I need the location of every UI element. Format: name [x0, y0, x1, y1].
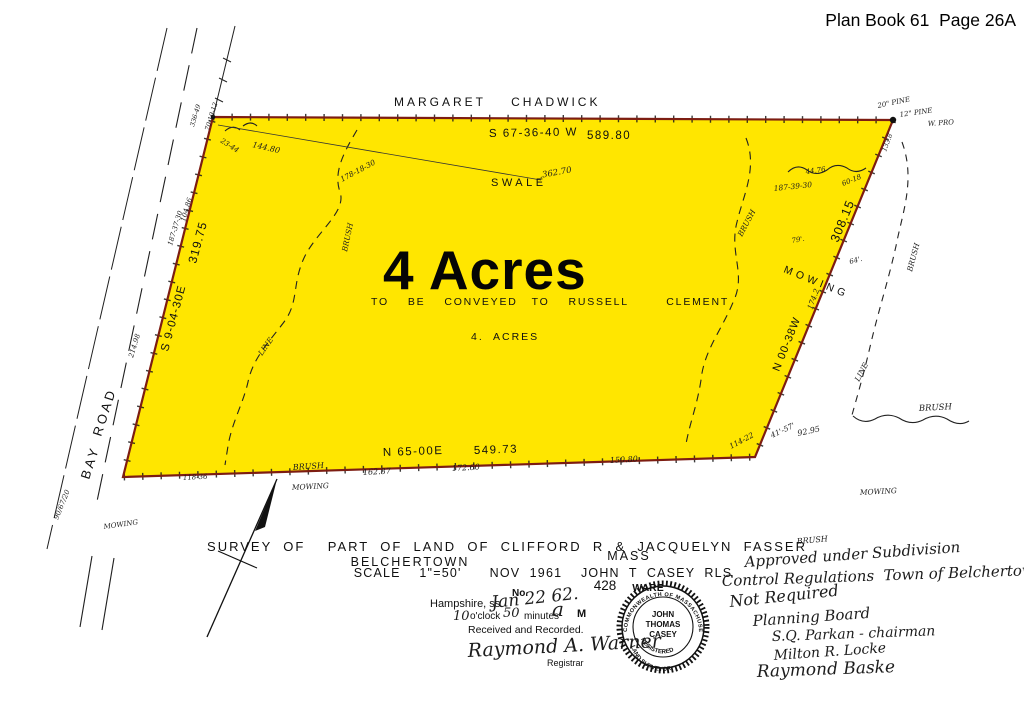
recording-m-label: M: [577, 608, 586, 620]
distance-north-label: 589.80: [587, 130, 631, 142]
note-dist-150: 150.80: [610, 455, 638, 465]
note-mowing-right: MOWING: [859, 486, 897, 497]
note-mowing-bottom: MOWING: [291, 481, 329, 492]
title-line1: SURVEY OF PART OF LAND OF CLIFFORD R & J…: [207, 539, 807, 554]
survey-plan-page: Plan Book 61 Page 26A MARGARET CHADWICK …: [0, 0, 1024, 703]
title-number: 428: [594, 578, 617, 593]
registrar-label: Registrar: [547, 658, 584, 668]
title-scale-line: SCALE 1"=50' NOV 1961 JOHN T CASEY RLS: [354, 566, 733, 580]
note-brush-outer: BRUSH: [905, 242, 922, 274]
plan-drawing: Plan Book 61 Page 26A MARGARET CHADWICK …: [0, 0, 1024, 703]
recording-minutes: 50: [503, 606, 520, 621]
approval-line7: Raymond Baske: [755, 657, 895, 682]
note-d64: 64'.: [848, 255, 863, 266]
note-dist-162: 162.87: [363, 466, 392, 477]
note-road: 90/67/20: [52, 488, 71, 521]
approval-notes: BRUSH Approved under Subdivision Control…: [722, 534, 1024, 682]
approval-brush: BRUSH: [795, 534, 829, 546]
road-name-road: ROAD: [90, 386, 120, 438]
distance-south-label: 549.73: [474, 443, 519, 457]
decorative-marks: [215, 58, 231, 102]
parcel-conveyed-note: TO BE CONVEYED TO RUSSELL CLEMENT: [371, 296, 729, 308]
abutter-north-label: MARGARET CHADWICK: [394, 95, 600, 109]
note-line-outer: LINE: [852, 361, 870, 384]
note-pine-12: 12" PINE: [899, 106, 933, 119]
recording-am: a: [552, 597, 564, 621]
plan-book-label: Plan Book 61 Page 26A: [825, 10, 1016, 30]
north-arrow: [207, 479, 277, 637]
corner-monument-ne: [890, 117, 896, 123]
parcel-area-small: 4. ACRES: [471, 331, 539, 343]
swale-label: SWALE: [491, 177, 547, 189]
note-brush-outer-h: BRUSH: [918, 402, 953, 414]
seal-name1: JOHN: [652, 610, 674, 619]
note-dist-92: 92.95: [797, 424, 821, 438]
recording-date: Jan 22 62.: [487, 584, 579, 613]
seal-name2: THOMAS: [646, 620, 681, 629]
note-dist-214: 214.98: [127, 332, 142, 359]
road-name-bay: BAY: [78, 444, 103, 481]
seal-name3: CASEY: [649, 630, 677, 639]
recording-hour: 10: [453, 609, 470, 624]
note-mowing-road: MOWING: [102, 518, 139, 531]
parcel-area-big: 4 Acres: [383, 239, 587, 301]
note-dist-118: 118-36: [183, 473, 209, 482]
bearing-north-label: S 67-36-40 W: [489, 126, 578, 140]
note-wpro: W. PRO: [928, 118, 955, 128]
note-dist-172: 172.60: [452, 463, 480, 473]
note-angle-336: 336-49: [188, 103, 202, 127]
note-pine-20: 20" PINE: [876, 95, 911, 110]
note-d41: 41'-57': [768, 421, 796, 440]
title-state: MASS: [607, 549, 650, 563]
recording-oclock: o'clock: [470, 611, 501, 622]
bearing-south-label: N 65-00E: [383, 445, 444, 459]
